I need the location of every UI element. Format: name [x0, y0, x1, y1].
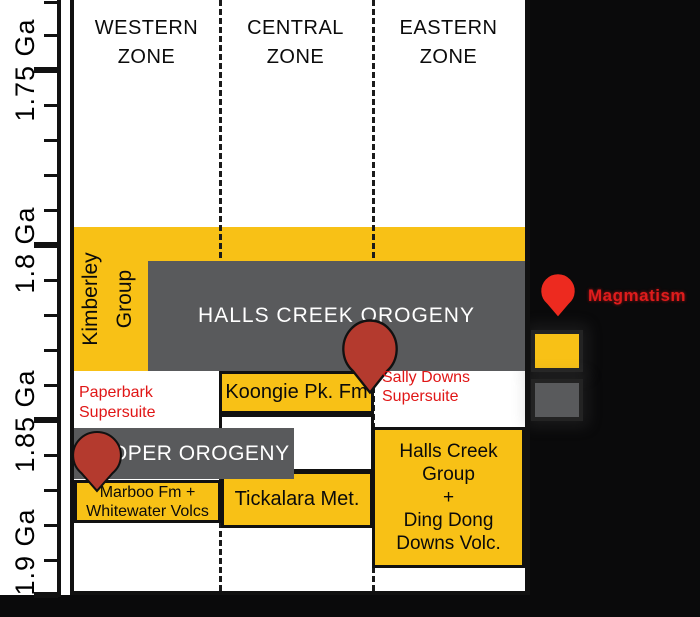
sally-downs-supersuite-label: Sally Downs Supersuite [382, 368, 470, 406]
marboo-fm-label-line2: Whitewater Volcs [86, 502, 209, 521]
zone-header-western-line2: ZONE [74, 43, 219, 72]
axis-label-1-9ga: 1.9 Ga [8, 487, 42, 617]
legend-gray-swatch [531, 379, 583, 421]
minor-tick [44, 454, 58, 457]
axis-label-1-85ga: 1.85 Ga [8, 356, 42, 486]
minor-tick [44, 524, 58, 527]
minor-tick [44, 104, 58, 107]
magmatism-pin-icon-hooper [71, 430, 123, 493]
minor-tick [44, 349, 58, 352]
tickalara-met-box: Tickalara Met. [221, 471, 373, 528]
zone-header-eastern-line2: ZONE [372, 43, 525, 72]
zone-header-western-line1: WESTERN [74, 14, 219, 43]
zone-header-eastern-line1: EASTERN [372, 14, 525, 43]
halls-creek-orogeny-label: HALLS CREEK OROGENY [198, 304, 475, 328]
halls-creek-orogeny-box: HALLS CREEK OROGENY [148, 261, 525, 371]
minor-tick [44, 139, 58, 142]
legend-magmatism-label: Magmatism [588, 286, 686, 306]
kimberley-group-label: Kimberley Group [74, 227, 148, 371]
zone-header-central-line1: CENTRAL [219, 14, 372, 43]
minor-tick [44, 34, 58, 37]
paperbark-supersuite-label: Paperbark Supersuite [79, 383, 156, 423]
minor-tick [44, 489, 58, 492]
age-axis-line [57, 0, 61, 597]
axis-label-1-75ga: 1.75 Ga [8, 5, 42, 135]
legend-yellow-swatch [531, 330, 583, 372]
minor-tick [44, 1, 58, 4]
zone-header-western: WESTERN ZONE [74, 14, 219, 76]
minor-tick [44, 314, 58, 317]
tickalara-met-label: Tickalara Met. [235, 488, 360, 511]
axis-label-1-8ga: 1.8 Ga [8, 185, 42, 315]
kimberley-group-column: Kimberley Group [74, 227, 148, 371]
minor-tick [44, 174, 58, 177]
zone-header-central-line2: ZONE [219, 43, 372, 72]
legend-pin-icon [539, 272, 577, 319]
minor-tick [44, 279, 58, 282]
halls-creek-group-box: Halls Creek Group + Ding Dong Downs Volc… [372, 427, 525, 568]
minor-tick [44, 209, 58, 212]
zone-header-central: CENTRAL ZONE [219, 14, 372, 76]
minor-tick [44, 384, 58, 387]
zone-header-eastern: EASTERN ZONE [372, 14, 525, 76]
minor-tick [44, 559, 58, 562]
